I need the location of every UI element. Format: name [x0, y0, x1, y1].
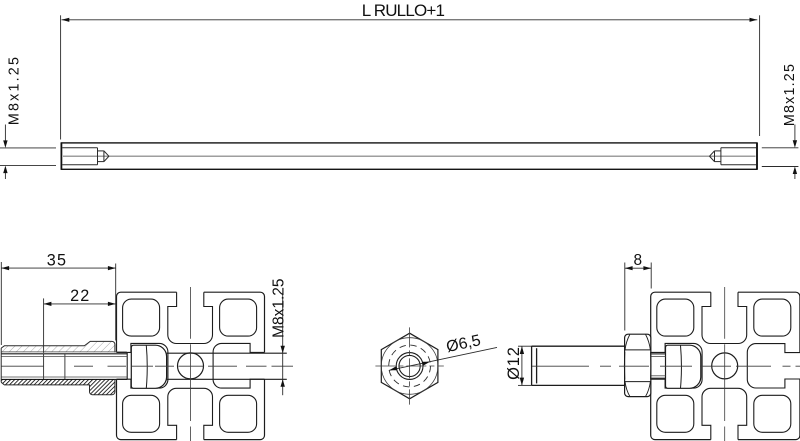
- svg-text:Ø12: Ø12: [505, 346, 523, 380]
- svg-text:8: 8: [634, 252, 643, 269]
- svg-text:M8x1.25: M8x1.25: [782, 63, 798, 126]
- svg-text:M8x1.25: M8x1.25: [271, 278, 288, 337]
- svg-text:35: 35: [47, 251, 67, 269]
- svg-text:L RULLO+1: L RULLO+1: [362, 1, 445, 20]
- svg-text:22: 22: [70, 287, 90, 305]
- svg-text:M8x1.25: M8x1.25: [7, 55, 23, 125]
- svg-text:Ø6,5: Ø6,5: [445, 332, 483, 356]
